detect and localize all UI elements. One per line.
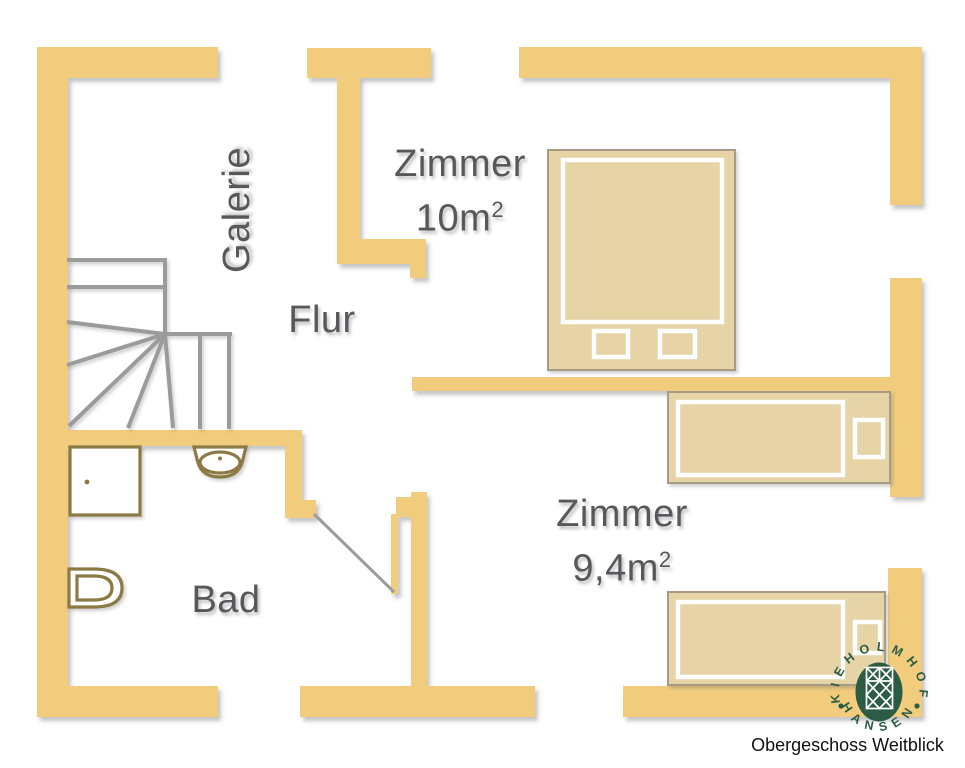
sink [194,447,246,477]
stair-winder-tread [165,334,173,428]
wall-segment-left [37,47,68,717]
logo-dot-right [914,703,919,708]
logo-dot-left [838,703,843,708]
door-swing-line [314,514,394,592]
door-jamb-nub [396,497,411,517]
wall-segment-right-middle [890,278,922,497]
toilet [69,569,122,607]
room-area: 9,4m2 [532,537,712,592]
room-name: Zimmer [532,491,712,537]
wall-segment-room-divider [412,377,893,391]
wall-segment-top-middle [307,48,431,78]
room-label-zimmer-9-4: Zimmer 9,4m2 [532,491,712,592]
bed-frame [668,592,885,685]
room-name: Flur [262,297,382,343]
winder-staircase [67,258,232,429]
single-bed-1 [668,392,890,483]
door-leaf [391,514,398,594]
shower-tray [70,447,140,515]
shower [70,447,140,515]
wall-segment-bottom-left [37,686,218,717]
wall-segment-zimmer10-left [337,78,360,264]
shower-drain [85,480,90,485]
bed-frame [548,150,735,370]
wall-segment-flur-post [411,492,427,717]
floor-caption: Obergeschoss Weitblick [745,735,950,756]
room-name: Galerie [214,130,260,290]
single-bed-2 [668,592,885,685]
sink-tap [218,457,222,461]
stair-winder-tread [67,322,165,334]
wall-segment-top-right [519,47,922,78]
floor-plan: KIEHOLMHOF HANSEN Galerie Zimmer 10m2 Fl… [0,0,965,768]
stair-winder-tread [128,334,165,428]
room-name: Zimmer [370,141,550,187]
floor-plan-canvas: KIEHOLMHOF HANSEN [0,0,965,768]
room-label-galerie: Galerie [214,130,258,290]
room-name: Bad [166,577,286,623]
room-label-zimmer-10: Zimmer 10m2 [370,141,550,242]
room-label-bad: Bad [166,577,286,623]
wall-segment-zimmer10-step [410,239,426,278]
wall-segment-bad-top [62,430,302,446]
room-label-flur: Flur [262,297,382,343]
room-area: 10m2 [370,187,550,242]
wall-segment-right-top [890,78,922,205]
double-bed [548,150,735,370]
wall-segment-bad-right [285,430,302,518]
